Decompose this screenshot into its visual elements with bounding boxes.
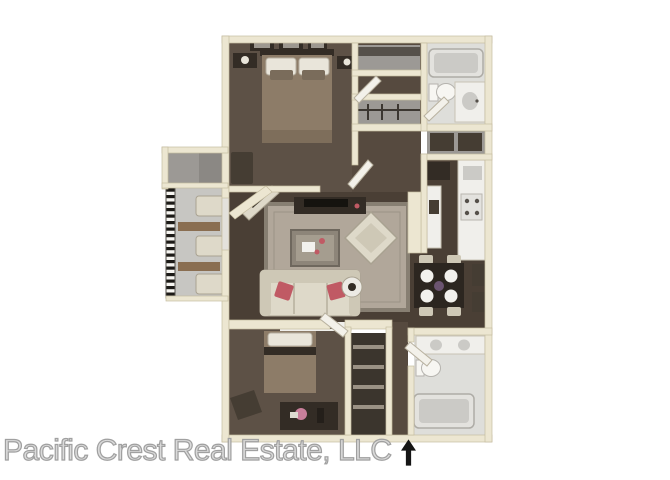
place-setting-2 — [445, 270, 458, 283]
wall-storage-top — [162, 147, 228, 153]
lamp-left — [241, 56, 249, 64]
wall-top — [222, 36, 492, 43]
burner-1 — [465, 199, 469, 203]
wall-closet2-right — [386, 327, 392, 435]
patio-chair-3 — [196, 274, 224, 294]
wall-art-1 — [472, 264, 485, 286]
burner-3 — [465, 211, 469, 215]
hall-closet-shelf — [356, 47, 420, 56]
console-decor — [355, 204, 360, 209]
sink-2a — [430, 340, 442, 351]
dining-chair-4 — [447, 307, 461, 316]
accent-pillow-left — [270, 70, 293, 80]
dresser — [280, 402, 338, 430]
wall-bedroom1-right — [352, 43, 358, 165]
faucet-1 — [475, 99, 478, 102]
closet-2-shelf-1 — [353, 345, 384, 349]
wall-living-bottom — [229, 320, 330, 329]
toilet-1-bowl — [437, 84, 456, 101]
closet-2-shelf-2 — [353, 365, 384, 369]
corridor-floor — [390, 322, 408, 435]
bed-2-pillow — [268, 333, 312, 346]
wall-bottom — [222, 435, 492, 442]
bed-2-band — [264, 347, 316, 355]
wall-bedroom1-bottom — [229, 186, 320, 192]
coffee-table-decor-2 — [315, 250, 320, 255]
wall-right — [485, 36, 492, 442]
wall-closet1-bottom — [352, 70, 427, 76]
storage-box-shadow — [199, 153, 225, 183]
wall-kitchen-left — [421, 154, 427, 253]
wall-closet2-left — [345, 327, 351, 435]
lamp-right — [344, 59, 351, 66]
vanity-2 — [416, 336, 485, 354]
patio-table-1 — [178, 222, 220, 231]
wall-art-2 — [472, 292, 485, 312]
counter-appliance — [429, 200, 439, 214]
refrigerator — [427, 162, 450, 180]
closet-2-shelf-3 — [353, 385, 384, 389]
patio-chair-1 — [196, 196, 224, 216]
patio-chair-2 — [196, 236, 224, 256]
wall-balcony-bottom — [166, 296, 228, 301]
dresser-cloth — [290, 412, 298, 418]
wall-bathroom2-left-a — [408, 328, 414, 342]
patio-table-2 — [178, 262, 220, 271]
burner-4 — [475, 211, 479, 215]
mid-closet-shelf-2 — [458, 133, 482, 151]
linen-closet-interior — [356, 100, 420, 124]
bathtub-2-basin — [419, 399, 469, 423]
round-side-table-decor — [348, 283, 356, 291]
bench — [231, 152, 253, 184]
coffee-table-decor-1 — [319, 238, 325, 244]
stove — [461, 194, 482, 220]
sink-2b — [458, 340, 470, 351]
place-setting-4 — [445, 290, 458, 303]
place-setting-1 — [421, 270, 434, 283]
place-setting-3 — [421, 290, 434, 303]
kitchen-counter-left — [427, 186, 441, 248]
dining-chair-1 — [419, 255, 433, 264]
wall-living-bottom-2 — [345, 320, 392, 329]
wall-living-kitchen — [408, 192, 421, 253]
centerpiece — [434, 281, 444, 291]
bed-1-foot — [262, 130, 332, 143]
headboard — [260, 49, 334, 56]
coffee-table-tray — [302, 242, 315, 252]
room-living — [242, 186, 408, 331]
dining-chair-2 — [447, 255, 461, 264]
bottle — [317, 408, 324, 423]
floorplan-svg — [0, 0, 670, 480]
wall-bathroom2-top — [408, 328, 492, 335]
kitchen-sink — [463, 166, 482, 180]
tv — [304, 199, 348, 207]
room-dining — [414, 255, 485, 316]
sofa-arm-left — [260, 270, 271, 316]
wall-kitchen-top — [421, 154, 492, 160]
balcony-railing — [166, 188, 175, 298]
closet-2-shelf-4 — [353, 405, 384, 409]
dining-chair-3 — [419, 307, 433, 316]
burner-2 — [475, 199, 479, 203]
bathtub-1-basin — [434, 53, 478, 73]
wall-storage-bottom — [162, 183, 228, 188]
accent-pillow-right — [302, 70, 325, 80]
floorplan-image — [0, 0, 670, 480]
room-closet-2 — [351, 333, 386, 435]
wall-bathroom2-left-b — [408, 366, 414, 435]
mid-closet-shelf-1 — [430, 133, 454, 151]
balcony-door — [222, 198, 229, 250]
